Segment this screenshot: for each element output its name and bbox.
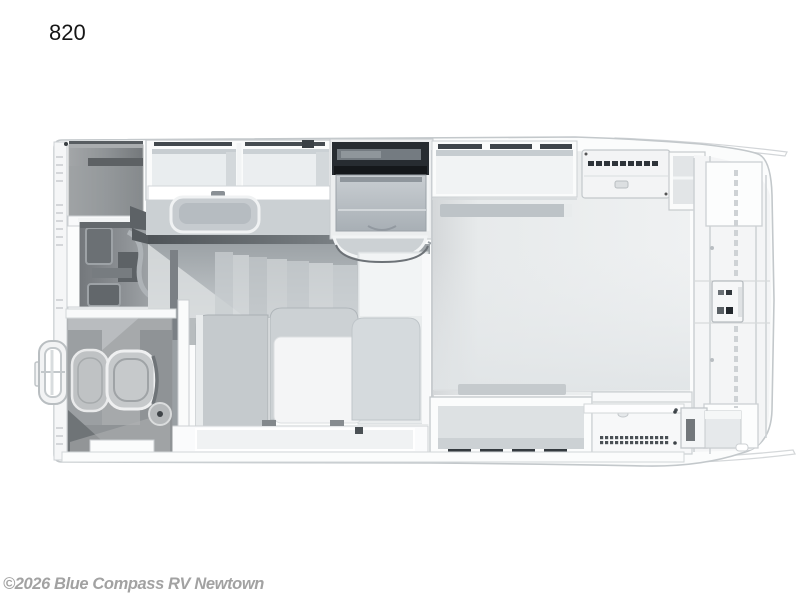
svg-text:820: 820 <box>49 20 86 45</box>
svg-text:©2026 Blue Compass RV Newtown: ©2026 Blue Compass RV Newtown <box>3 575 264 593</box>
